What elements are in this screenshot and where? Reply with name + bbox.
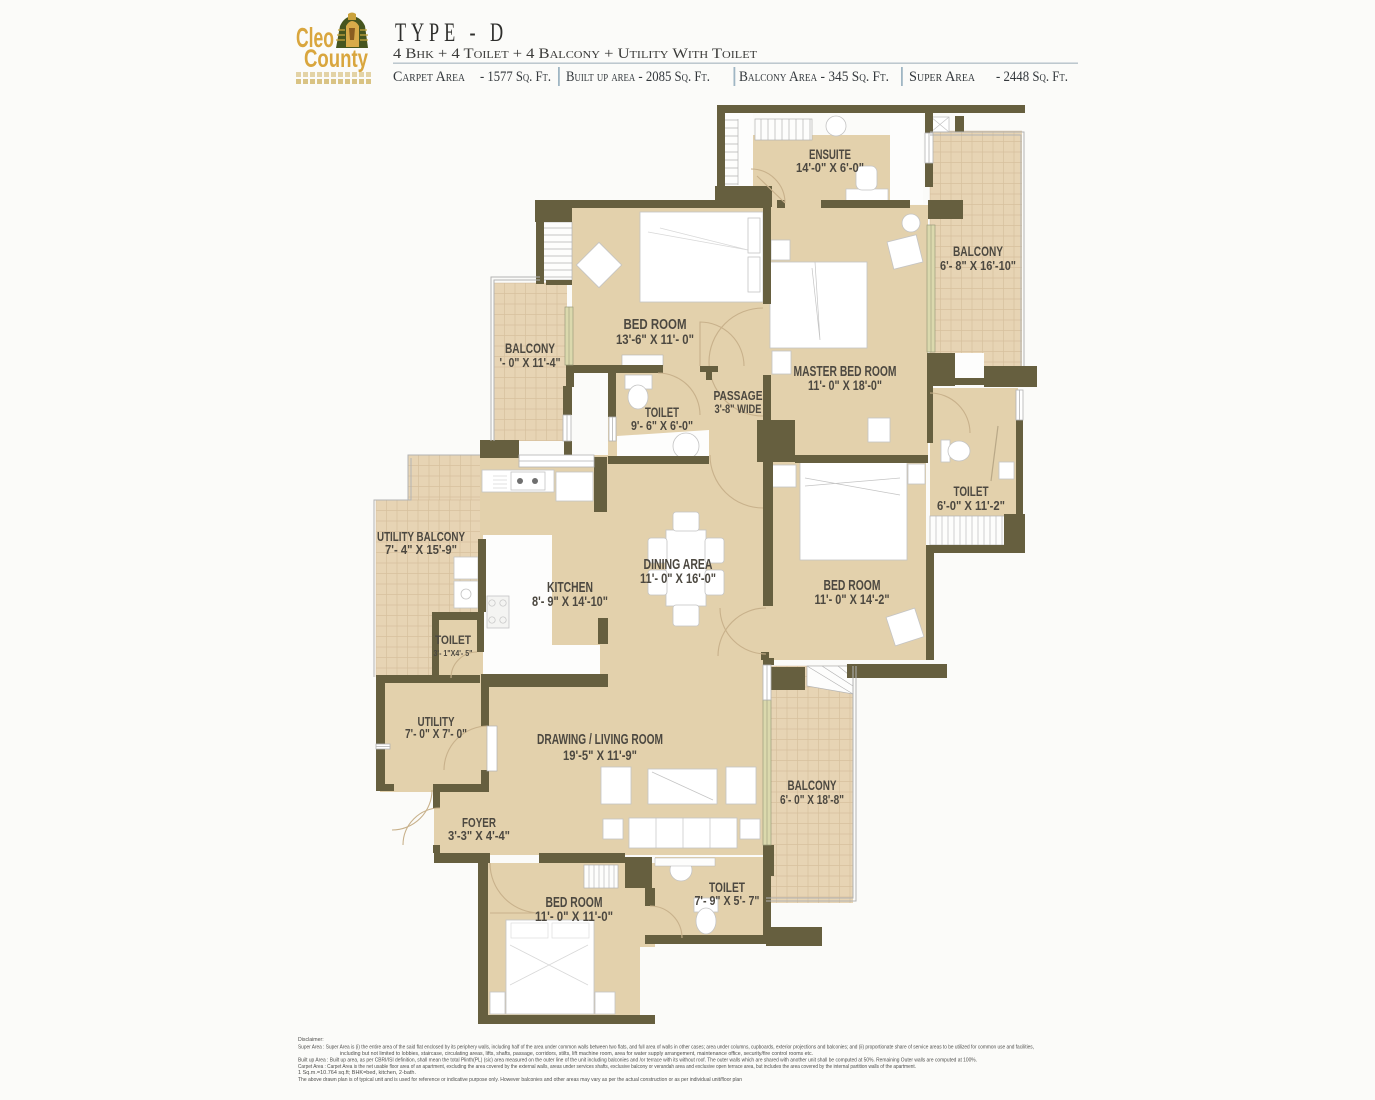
svg-text:7'- 9" X 5'- 7": 7'- 9" X 5'- 7" bbox=[695, 894, 760, 908]
svg-text:County: County bbox=[304, 45, 368, 73]
svg-text:11'- 0" X 14'-2": 11'- 0" X 14'-2" bbox=[815, 592, 890, 607]
svg-text:TOILET: TOILET bbox=[435, 635, 471, 647]
svg-text:TOILET: TOILET bbox=[709, 880, 746, 895]
svg-text:TYPE - D: TYPE - D bbox=[395, 18, 508, 47]
svg-text:1 Sq.m.=10.764 sq.ft; BHK=bed,: 1 Sq.m.=10.764 sq.ft; BHK=bed, kitchen, … bbox=[298, 1070, 416, 1076]
svg-text:Balcony Area - 345 Sq. Ft.: Balcony Area - 345 Sq. Ft. bbox=[739, 69, 889, 85]
svg-text:UTILITY BALCONY: UTILITY BALCONY bbox=[377, 529, 465, 544]
svg-text:Built up Area : Built up: Built up Area : Built up area, as per CB… bbox=[298, 1058, 977, 1064]
svg-text:including but not limited to l: including but not limited to lobbies, st… bbox=[340, 1051, 813, 1057]
svg-text:Disclaimer:: Disclaimer: bbox=[298, 1037, 324, 1043]
svg-text:'- 0" X 11'-4": '- 0" X 11'-4" bbox=[500, 355, 561, 370]
svg-text:13'-6" X 11'- 0": 13'-6" X 11'- 0" bbox=[616, 332, 694, 347]
svg-text:Carpet Area: Carpet Area bbox=[393, 69, 466, 85]
svg-text:3'- 1"X4'- 5": 3'- 1"X4'- 5" bbox=[434, 648, 473, 658]
svg-text:Super Area : Super Ar: Super Area : Super Area is (i) the entir… bbox=[298, 1045, 1034, 1051]
svg-text:9'- 6" X 6'-0": 9'- 6" X 6'-0" bbox=[631, 419, 693, 433]
svg-text:6'-0" X 11'-2": 6'-0" X 11'-2" bbox=[937, 499, 1005, 513]
svg-text:Super Area: Super Area bbox=[909, 69, 976, 85]
svg-text:BALCONY: BALCONY bbox=[788, 777, 837, 793]
svg-text:PASSAGE: PASSAGE bbox=[714, 388, 763, 403]
svg-text:- 1577 Sq. Ft.: - 1577 Sq. Ft. bbox=[480, 69, 551, 85]
svg-text:4 Bhk + 4 Toilet + 4 Balcony +: 4 Bhk + 4 Toilet + 4 Balcony + Utility W… bbox=[393, 46, 757, 62]
svg-text:11'- 0" X 18'-0": 11'- 0" X 18'-0" bbox=[808, 378, 882, 393]
svg-text:8'- 9" X 14'-10": 8'- 9" X 14'-10" bbox=[532, 594, 608, 609]
svg-text:6'- 0" X 18'-8": 6'- 0" X 18'-8" bbox=[780, 792, 844, 807]
svg-text:7'- 0" X 7'- 0": 7'- 0" X 7'- 0" bbox=[405, 727, 467, 741]
svg-text:Built up area - 2085 Sq. Ft.: Built up area - 2085 Sq. Ft. bbox=[566, 69, 710, 85]
svg-text:14'-0" X 6'-0": 14'-0" X 6'-0" bbox=[796, 161, 864, 175]
svg-text:11'- 0" X 11'-0": 11'- 0" X 11'-0" bbox=[535, 909, 613, 924]
svg-text:3'-8" WIDE: 3'-8" WIDE bbox=[715, 402, 762, 416]
svg-text:BALCONY: BALCONY bbox=[505, 340, 555, 356]
svg-text:FOYER: FOYER bbox=[462, 815, 496, 830]
svg-text:3'-3" X 4'-4": 3'-3" X 4'-4" bbox=[448, 829, 510, 843]
svg-text:TOILET: TOILET bbox=[954, 484, 990, 499]
svg-text:6'- 8" X 16'-10": 6'- 8" X 16'-10" bbox=[940, 258, 1016, 273]
svg-text:11'- 0" X 16'-0": 11'- 0" X 16'-0" bbox=[640, 571, 716, 586]
svg-text:BALCONY: BALCONY bbox=[953, 243, 1003, 259]
svg-text:7'- 4" X 15'-9": 7'- 4" X 15'-9" bbox=[385, 543, 457, 557]
svg-text:The above drawn plan is of typ: The above drawn plan is of typical unit … bbox=[298, 1077, 742, 1083]
svg-text:DRAWING / LIVING ROOM: DRAWING / LIVING ROOM bbox=[537, 732, 663, 748]
svg-text:BED ROOM: BED ROOM bbox=[624, 317, 687, 333]
svg-text:- 2448 Sq. Ft.: - 2448 Sq. Ft. bbox=[996, 69, 1068, 85]
svg-text:TOILET: TOILET bbox=[645, 405, 680, 420]
svg-text:19'-5" X 11'-9": 19'-5" X 11'-9" bbox=[563, 748, 637, 763]
svg-text:ENSUITE: ENSUITE bbox=[809, 147, 851, 162]
